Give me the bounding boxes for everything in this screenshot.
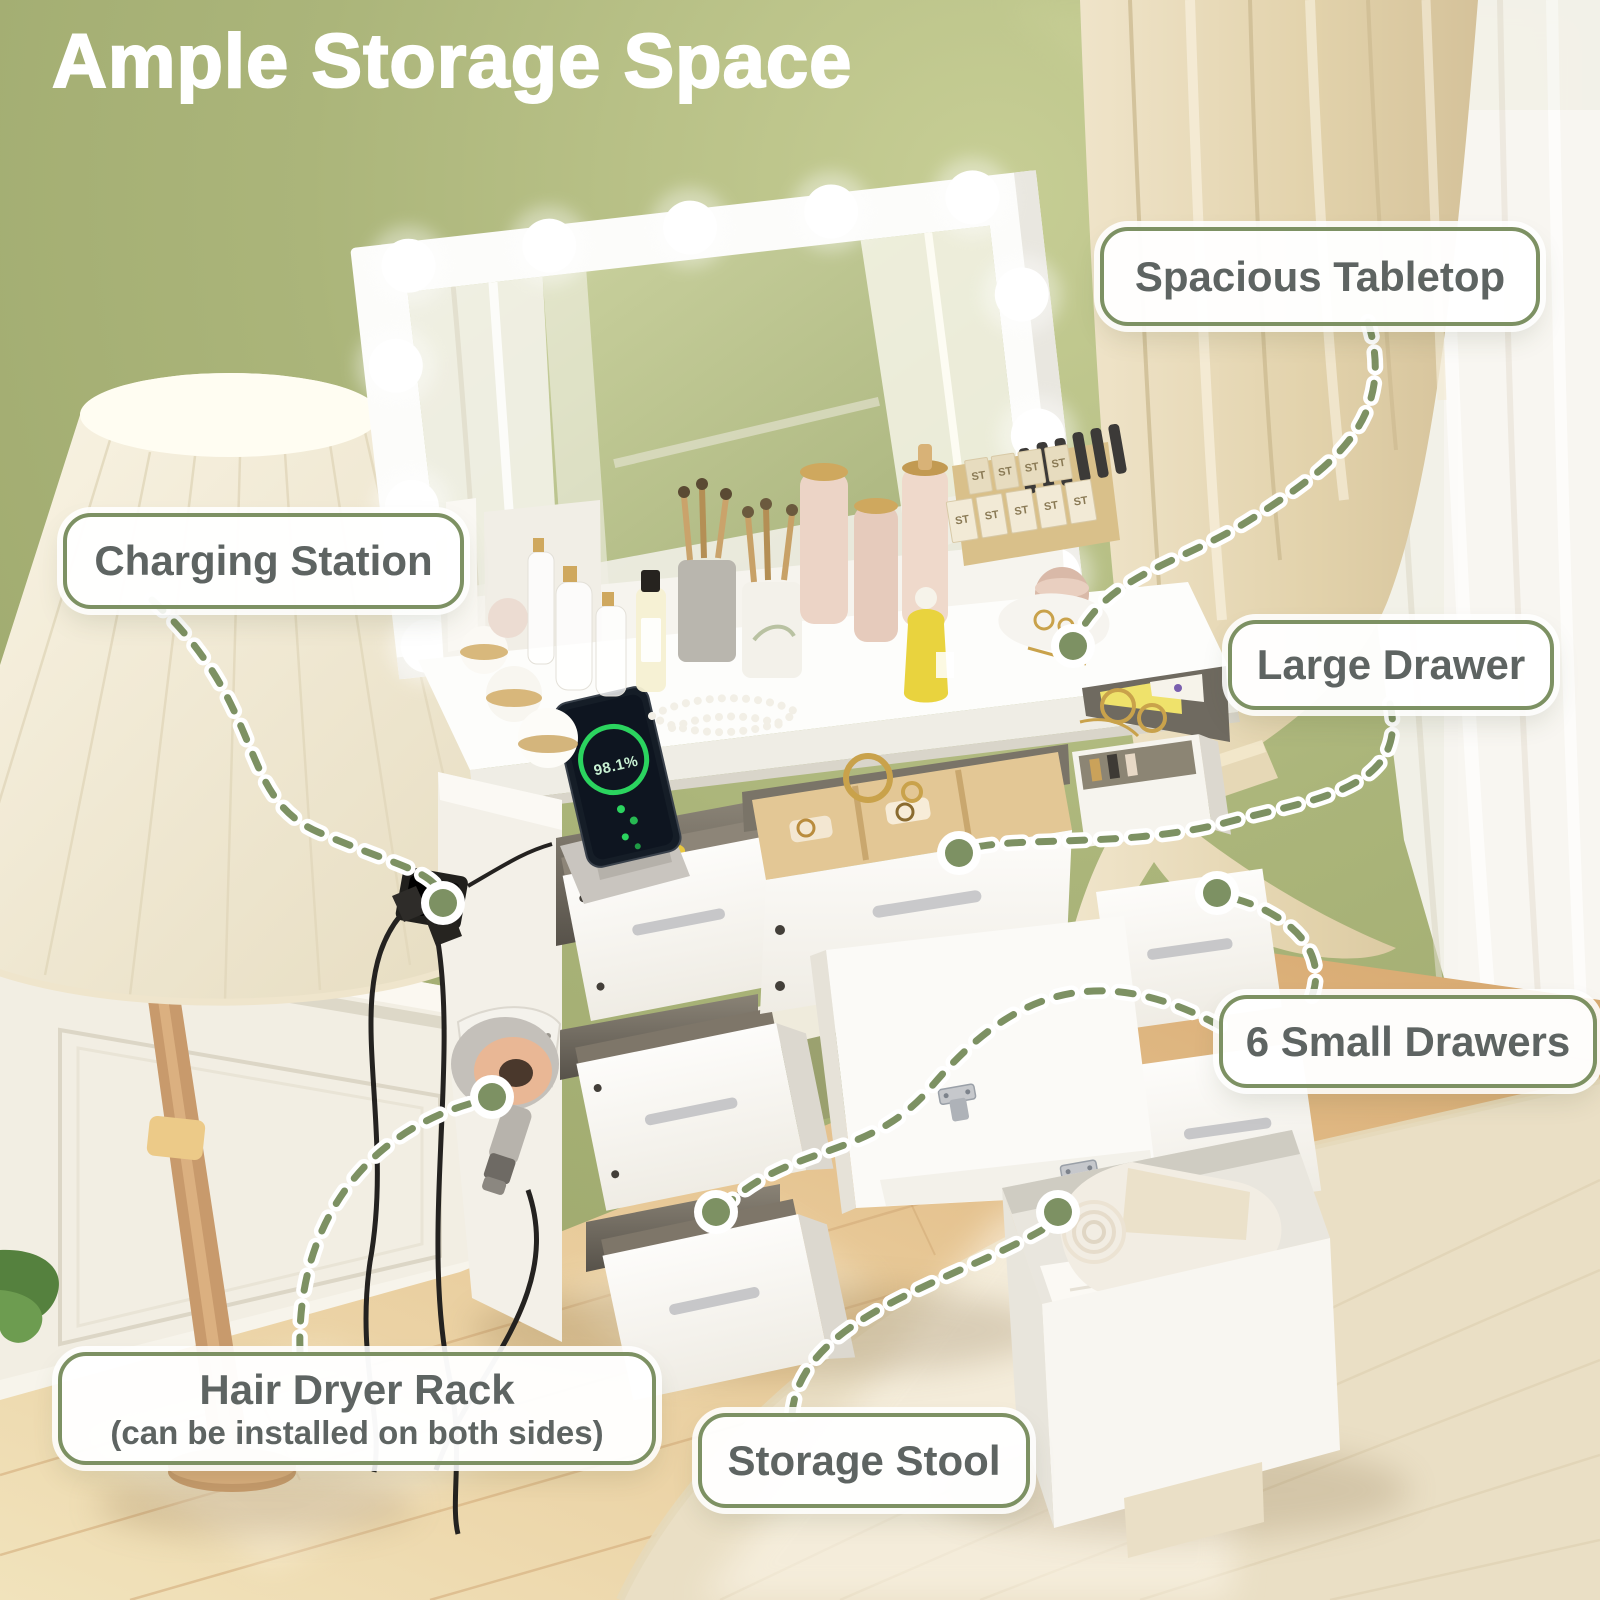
cosmetic-box: ST (975, 493, 1008, 539)
cosmetic-box: ST (1017, 448, 1046, 486)
page-title: Ample Storage Space (52, 18, 852, 105)
callout-label: Spacious Tabletop (1135, 253, 1505, 300)
callout-charging-station: Charging Station (63, 513, 464, 609)
cosmetic-box: ST (1005, 488, 1038, 534)
callout-label: Storage Stool (727, 1437, 1000, 1484)
cosmetic-box: ST (1035, 483, 1068, 529)
callout-spacious-tabletop: Spacious Tabletop (1100, 227, 1540, 326)
cosmetic-box: ST (964, 457, 993, 495)
callout-label: Large Drawer (1257, 641, 1525, 688)
callout-label: Hair Dryer Rack (199, 1366, 514, 1413)
cosmetic-box: ST (991, 452, 1020, 490)
callout-hair-dryer-rack: Hair Dryer Rack (can be installed on bot… (58, 1352, 656, 1465)
callout-label: Charging Station (94, 537, 432, 584)
cosmetic-box: ST (946, 498, 979, 544)
callout-label: 6 Small Drawers (1246, 1018, 1571, 1065)
callout-storage-stool: Storage Stool (698, 1413, 1030, 1508)
callout-sublabel: (can be installed on both sides) (110, 1415, 603, 1452)
callout-six-small-drawers: 6 Small Drawers (1219, 995, 1597, 1088)
cream-jar (488, 598, 528, 638)
product-infographic: Ample Storage Space Spacious Tabletop Ch… (0, 0, 1600, 1600)
lamp-shade-opening (80, 373, 380, 457)
callout-large-drawer: Large Drawer (1228, 620, 1554, 710)
